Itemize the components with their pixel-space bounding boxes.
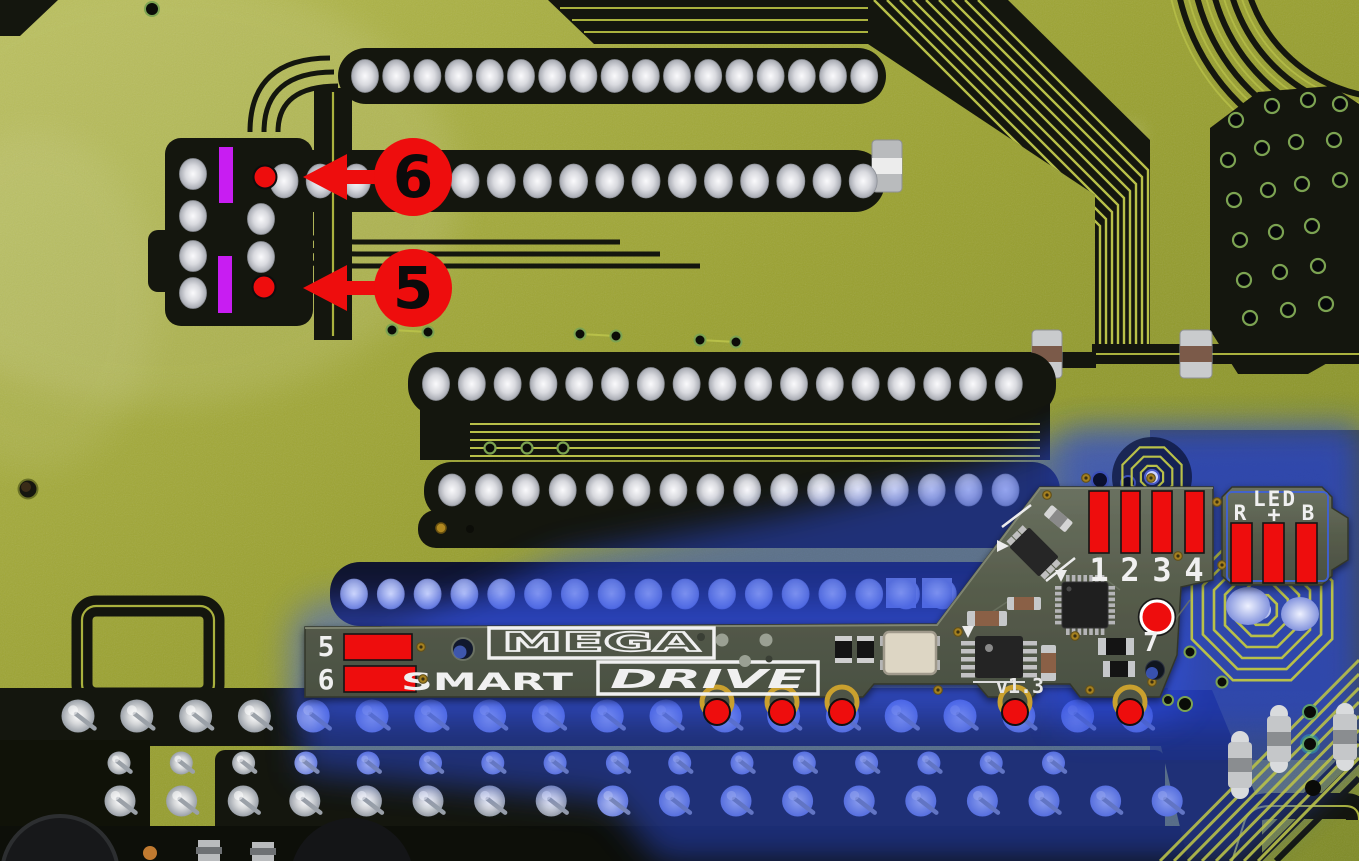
solder-pad xyxy=(383,60,410,93)
ic-pin xyxy=(1023,641,1037,646)
via-hole xyxy=(1146,661,1165,680)
callout-5-label: 5 xyxy=(393,254,433,322)
pad-label-3: 3 xyxy=(1152,551,1171,589)
castellation-dot-marker xyxy=(769,699,795,725)
smart-logo-text: SMART xyxy=(401,668,574,696)
callout-6-label: 6 xyxy=(393,143,433,211)
gold-via-center xyxy=(1176,554,1179,557)
via-hole xyxy=(423,327,434,338)
drive-logo-text: DRIVE xyxy=(610,665,806,695)
ic-pin xyxy=(961,641,975,646)
solder-pad xyxy=(816,368,843,401)
castellation-dot-marker xyxy=(1117,699,1143,725)
pin-highlight xyxy=(127,705,137,715)
solder-pad xyxy=(668,164,696,198)
via-hole xyxy=(522,443,533,454)
solder-pad xyxy=(566,368,593,401)
ic-pin xyxy=(1023,657,1037,662)
solder-pad xyxy=(632,60,659,93)
pin-highlight xyxy=(111,791,120,800)
gold-via-center xyxy=(956,630,959,633)
via-hole xyxy=(1265,99,1279,113)
solder-pad xyxy=(849,164,877,198)
via-hole xyxy=(1305,219,1319,233)
solder-pad xyxy=(664,60,691,93)
wire-pad-5-label: 5 xyxy=(318,630,335,663)
gold-via-center xyxy=(419,645,422,648)
solder-pad xyxy=(512,474,539,506)
gold-via-center xyxy=(1149,476,1152,479)
led-pad-marker-plus xyxy=(1263,523,1284,583)
pin-highlight xyxy=(112,756,119,763)
solder-pad xyxy=(813,164,841,198)
via-hole xyxy=(1319,297,1333,311)
solder-pad xyxy=(180,241,207,272)
pad-label-1: 1 xyxy=(1089,551,1108,589)
solder-pad xyxy=(445,60,472,93)
via-hole xyxy=(1311,259,1325,273)
via-hole xyxy=(731,337,742,348)
castellation-dot-marker xyxy=(829,699,855,725)
solder-pad xyxy=(423,368,450,401)
solder-pad xyxy=(248,204,275,235)
solder-pad xyxy=(476,60,503,93)
pin-highlight xyxy=(68,705,78,715)
solder-pad xyxy=(637,368,664,401)
via-hole xyxy=(387,325,398,336)
solder-pad xyxy=(673,368,700,401)
gold-via-center xyxy=(1150,680,1153,683)
via-marker-6 xyxy=(254,166,277,189)
via-hole xyxy=(1327,133,1341,147)
pad-label-4: 4 xyxy=(1184,551,1203,589)
via-hole xyxy=(1281,303,1295,317)
solder-pad xyxy=(487,164,515,198)
ic-pin xyxy=(961,657,975,662)
via-hole xyxy=(1221,153,1235,167)
gold-via-center xyxy=(1215,500,1218,503)
wire-pad-5-marker xyxy=(344,634,412,660)
solder-pad xyxy=(697,474,724,506)
pin-highlight xyxy=(296,791,305,800)
pad-marker-2 xyxy=(1121,491,1140,553)
solder-pad xyxy=(704,164,732,198)
pin-highlight xyxy=(237,756,244,763)
ic-pin xyxy=(1023,665,1037,670)
solder-pad xyxy=(709,368,736,401)
ic-pin xyxy=(961,649,975,654)
solder-pad xyxy=(180,278,207,309)
via-hole xyxy=(1237,273,1251,287)
ic-pin xyxy=(961,673,975,678)
solder-pad xyxy=(788,60,815,93)
pin-highlight xyxy=(186,705,196,715)
via-hole xyxy=(1333,173,1347,187)
solder-pad xyxy=(623,474,650,506)
solder-pad xyxy=(523,164,551,198)
via-hole xyxy=(575,329,586,340)
gold-via-center xyxy=(1088,688,1091,691)
pad7-label: 7 xyxy=(1143,628,1159,658)
solder-pad xyxy=(852,368,879,401)
solder-pad xyxy=(757,60,784,93)
solder-pad xyxy=(560,164,588,198)
via-hole xyxy=(611,331,622,342)
via-hole xyxy=(1301,93,1315,107)
solder-pad xyxy=(851,60,878,93)
solder-pad xyxy=(660,474,687,506)
pcb-photo: 5 6 MEGA SMART DRIVE xyxy=(0,0,1359,861)
solder-pad xyxy=(745,368,772,401)
pin-highlight xyxy=(357,791,366,800)
solder-pad xyxy=(888,368,915,401)
solder-pad xyxy=(632,164,660,198)
version-text: v1.3 xyxy=(996,674,1044,698)
led-pad-marker-b xyxy=(1296,523,1317,583)
solder-pad xyxy=(539,60,566,93)
pin-highlight xyxy=(245,705,255,715)
pad-marker-4 xyxy=(1185,491,1204,553)
wire-pad-6-label: 6 xyxy=(318,663,335,696)
pin-highlight xyxy=(174,756,181,763)
pcb-install-diagram: 5 6 MEGA SMART DRIVE xyxy=(0,0,1359,861)
via-hole xyxy=(558,443,569,454)
ic-pin xyxy=(961,665,975,670)
purple-marker-bottom xyxy=(218,256,232,313)
pad-marker-1 xyxy=(1089,491,1109,553)
solder-pad xyxy=(781,368,808,401)
via-hole xyxy=(485,443,496,454)
solder-pad xyxy=(695,60,722,93)
solder-pad xyxy=(601,60,628,93)
led-pin-r-label: R xyxy=(1234,501,1247,525)
solder-pad xyxy=(451,164,479,198)
solder-pad xyxy=(570,60,597,93)
solder-pad xyxy=(414,60,441,93)
solder-pad xyxy=(808,474,835,506)
solder-pad xyxy=(508,60,535,93)
pad-label-2: 2 xyxy=(1120,551,1139,589)
solder-pad xyxy=(960,368,987,401)
solder-pad xyxy=(439,474,466,506)
ic-pin xyxy=(1023,649,1037,654)
led-pin-b-label: B xyxy=(1302,501,1315,525)
solder-pad xyxy=(352,60,379,93)
via-hole xyxy=(1269,225,1283,239)
gold-via-center xyxy=(936,688,939,691)
solder-pad xyxy=(458,368,485,401)
mounting-hole xyxy=(452,638,474,660)
solder-pad xyxy=(596,164,624,198)
solder-pad xyxy=(820,60,847,93)
gold-via-center xyxy=(421,677,424,680)
solder-pad xyxy=(494,368,521,401)
solder-pad xyxy=(734,474,761,506)
solder-pad xyxy=(475,474,502,506)
via-hole xyxy=(1289,135,1303,149)
solder-pad xyxy=(180,159,207,190)
via-hole xyxy=(1229,113,1243,127)
via-hole xyxy=(1243,311,1257,325)
via-hole xyxy=(1227,193,1241,207)
solder-pad xyxy=(726,60,753,93)
crystal-oscillator xyxy=(880,632,940,674)
via-marker-5 xyxy=(253,276,276,299)
pin-highlight xyxy=(234,791,243,800)
led-pad-marker-r xyxy=(1231,523,1252,583)
solder-pad xyxy=(924,368,951,401)
gold-via-center xyxy=(1220,563,1223,566)
via-block xyxy=(1210,86,1359,374)
castellation-dot-marker xyxy=(704,699,730,725)
solder-pad xyxy=(602,368,629,401)
solder-pad xyxy=(530,368,557,401)
solder-pad xyxy=(771,474,798,506)
solder-pad xyxy=(777,164,805,198)
via-hole xyxy=(1233,233,1247,247)
castellation-dot-marker xyxy=(1002,699,1028,725)
pin-highlight xyxy=(172,791,181,800)
purple-marker-top xyxy=(219,147,233,203)
via-hole xyxy=(1261,183,1275,197)
solder-pad xyxy=(248,242,275,273)
pin-highlight xyxy=(480,791,489,800)
gold-via-center xyxy=(1045,493,1048,496)
via-hole xyxy=(1255,141,1269,155)
solder-pad xyxy=(586,474,613,506)
solder-pad xyxy=(995,368,1022,401)
via-hole xyxy=(1273,265,1287,279)
solder-pad xyxy=(549,474,576,506)
gold-via-center xyxy=(1073,634,1076,637)
gold-via-center xyxy=(1084,476,1087,479)
pad-marker-3 xyxy=(1152,491,1172,553)
solder-pad xyxy=(180,201,207,232)
via-hole xyxy=(695,335,706,346)
via-hole xyxy=(1333,97,1347,111)
solder-pad xyxy=(741,164,769,198)
via-hole xyxy=(1295,177,1309,191)
pin-highlight xyxy=(419,791,428,800)
mega-logo-text: MEGA xyxy=(502,628,700,658)
